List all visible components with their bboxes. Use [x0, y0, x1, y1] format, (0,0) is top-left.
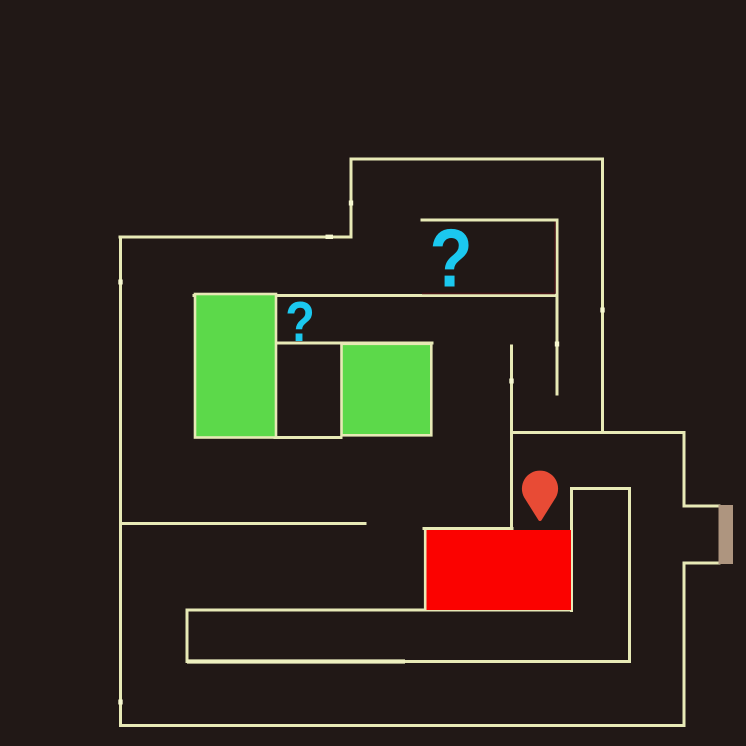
- svg-text:?: ?: [285, 290, 315, 354]
- svg-text:?: ?: [429, 212, 472, 305]
